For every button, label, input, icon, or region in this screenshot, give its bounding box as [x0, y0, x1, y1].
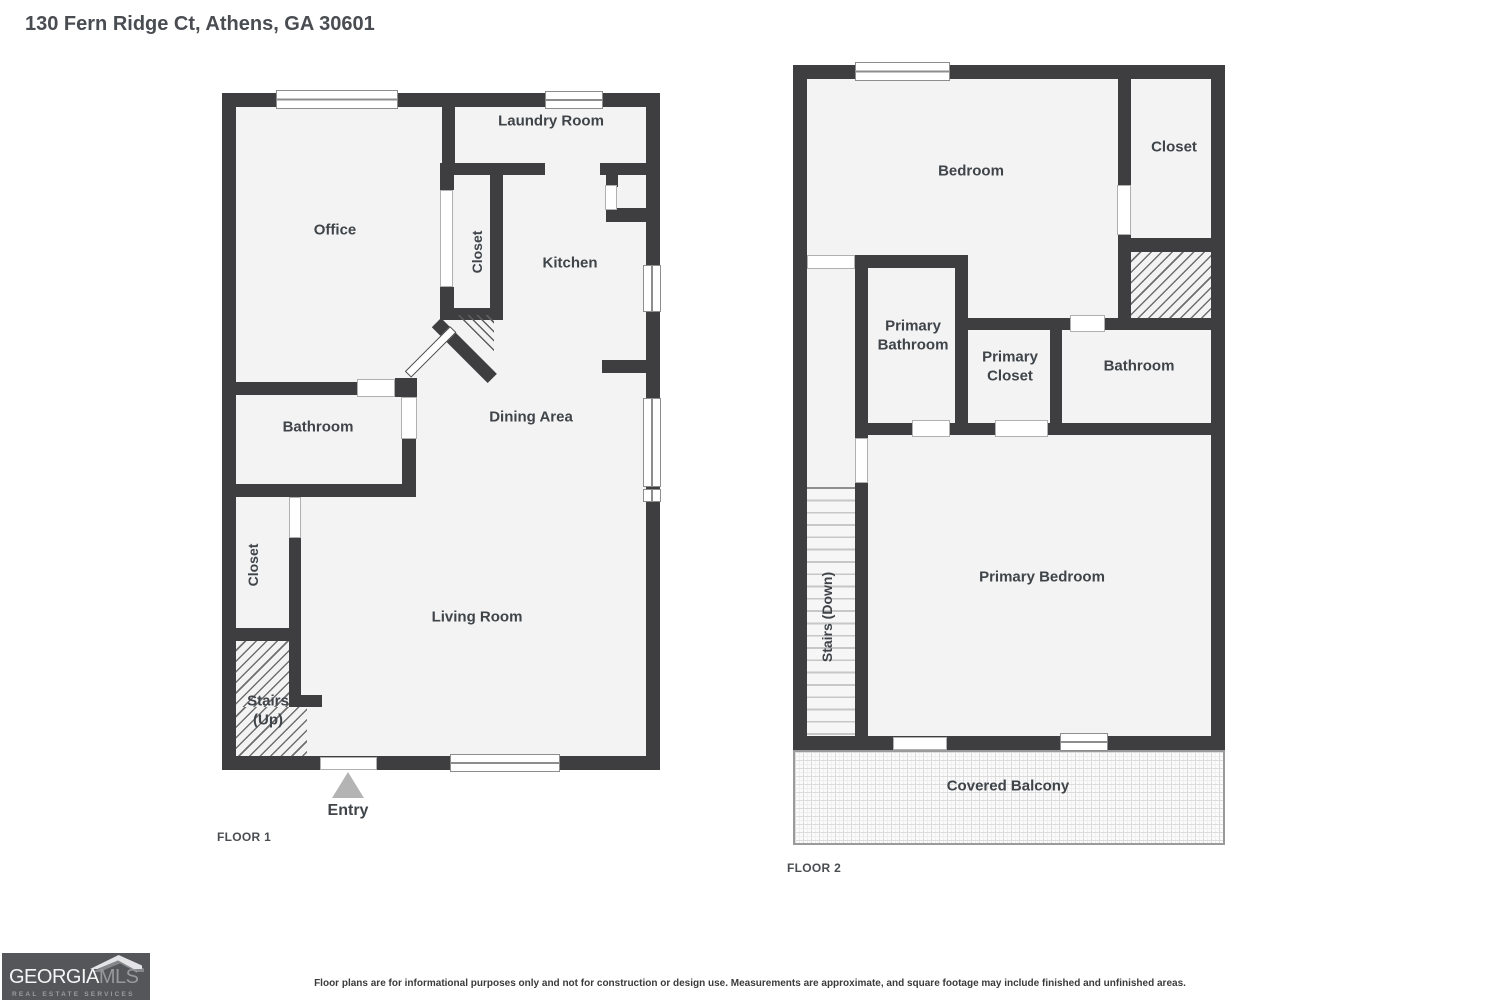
georgia-mls-logo: GEORGIAMLS REAL ESTATE SERVICES	[2, 953, 150, 1000]
room-label-dining-area: Dining Area	[489, 409, 573, 428]
wall	[793, 736, 1225, 750]
room-label-primary-bedroom: Primary Bedroom	[979, 569, 1105, 588]
entry-arrow-icon	[332, 772, 364, 798]
door-opening	[807, 255, 855, 269]
wall	[793, 65, 807, 750]
room-label-covered-balcony: Covered Balcony	[947, 778, 1070, 797]
wall	[402, 438, 416, 490]
door-opening	[289, 497, 301, 538]
wall	[289, 537, 301, 628]
page-title: 130 Fern Ridge Ct, Athens, GA 30601	[25, 13, 375, 36]
room-label-bathroom: Bathroom	[283, 419, 354, 438]
wall	[1211, 65, 1225, 750]
wall	[602, 360, 646, 373]
room-label-closet-top: Closet	[469, 231, 485, 274]
room-label-primary-bathroom: Primary Bathroom	[863, 317, 963, 355]
window	[643, 489, 661, 502]
door-opening	[1070, 315, 1105, 332]
wall	[440, 163, 454, 190]
room-label-closet: Closet	[1151, 139, 1197, 158]
window	[276, 90, 398, 109]
floor1-tag: FLOOR 1	[217, 830, 271, 844]
room-label-closet-left: Closet	[245, 544, 261, 587]
door-opening	[912, 420, 950, 437]
window	[450, 754, 560, 772]
floor2-tag: FLOOR 2	[787, 861, 841, 875]
door-opening	[357, 379, 395, 397]
void-hatch	[1131, 252, 1211, 318]
wall	[600, 163, 660, 175]
room-label-kitchen: Kitchen	[542, 255, 597, 274]
logo-wordmark: GEORGIAMLS	[9, 966, 138, 989]
door-opening	[401, 397, 417, 439]
room-label-living-room: Living Room	[432, 609, 523, 628]
wall	[222, 93, 236, 770]
disclaimer-text: Floor plans are for informational purpos…	[0, 978, 1500, 989]
room-label-primary-closet: Primary Closet	[970, 348, 1050, 386]
wall	[234, 382, 357, 395]
wall	[1118, 65, 1131, 185]
wall	[490, 163, 503, 320]
wall	[234, 484, 416, 497]
door-opening	[855, 438, 868, 483]
room-label-office: Office	[314, 222, 357, 241]
entry-opening	[320, 757, 377, 770]
wall	[606, 208, 646, 222]
floor1-plan: Office Laundry Room Closet Kitchen Dinin…	[222, 93, 660, 770]
room-label-bedroom: Bedroom	[938, 163, 1004, 182]
door-opening	[995, 420, 1048, 437]
entry-label: Entry	[328, 801, 369, 821]
room-label-stairs-up: Stairs (Up)	[236, 692, 300, 730]
wall	[855, 255, 968, 268]
window	[643, 265, 661, 312]
wall	[395, 378, 417, 397]
logo-brand-primary: GEORGIA	[9, 966, 99, 988]
logo-tagline: REAL ESTATE SERVICES	[12, 991, 135, 998]
logo-brand-secondary: MLS	[99, 966, 139, 988]
wall	[855, 483, 868, 736]
window	[855, 62, 950, 81]
door-opening	[1117, 185, 1131, 235]
wall	[1050, 318, 1062, 435]
door-opening	[440, 190, 453, 287]
wall	[222, 756, 660, 770]
window	[643, 398, 661, 487]
wall	[289, 635, 301, 700]
room-label-laundry-room: Laundry Room	[498, 113, 604, 132]
window	[545, 91, 603, 109]
window	[1060, 733, 1108, 751]
room-label-bathroom2: Bathroom	[1104, 358, 1175, 377]
floor2-plan: Bedroom Closet Primary Bathroom Primary …	[793, 65, 1225, 750]
door-opening	[605, 185, 617, 210]
wall	[1118, 238, 1225, 252]
room-label-stairs-down: Stairs (Down)	[819, 572, 835, 662]
wall	[1048, 423, 1225, 435]
wall	[950, 423, 995, 435]
wall	[1105, 318, 1225, 330]
wall	[855, 423, 912, 435]
balcony-door-opening	[893, 737, 947, 750]
covered-balcony-area	[793, 750, 1225, 845]
